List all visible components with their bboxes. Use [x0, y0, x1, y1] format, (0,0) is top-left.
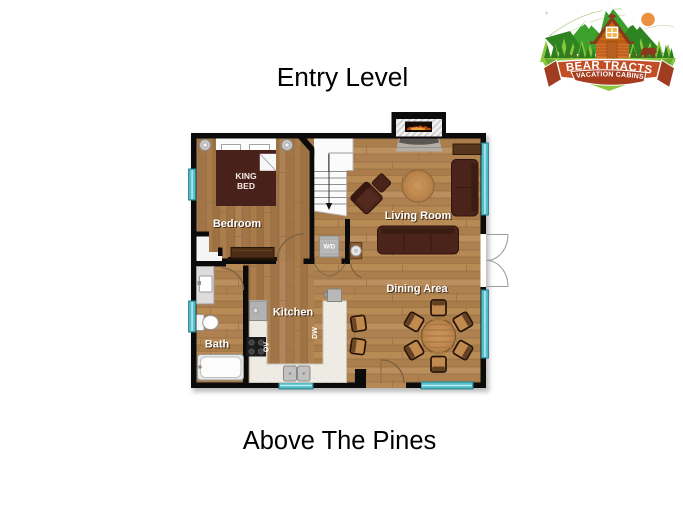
svg-text:Dining Area: Dining Area: [386, 283, 448, 295]
svg-text:DW: DW: [312, 327, 319, 339]
svg-text:BED: BED: [237, 181, 255, 191]
svg-text:OV: OV: [264, 342, 271, 352]
svg-text:Living Room: Living Room: [385, 210, 452, 222]
svg-text:Kitchen: Kitchen: [273, 307, 314, 319]
svg-text:KING: KING: [235, 171, 257, 181]
svg-text:Entry Level: Entry Level: [277, 64, 409, 92]
svg-text:Bath: Bath: [205, 339, 230, 351]
svg-text:Bedroom: Bedroom: [213, 218, 262, 230]
svg-text:Above The Pines: Above The Pines: [243, 427, 437, 455]
svg-text:W/D: W/D: [323, 245, 335, 251]
